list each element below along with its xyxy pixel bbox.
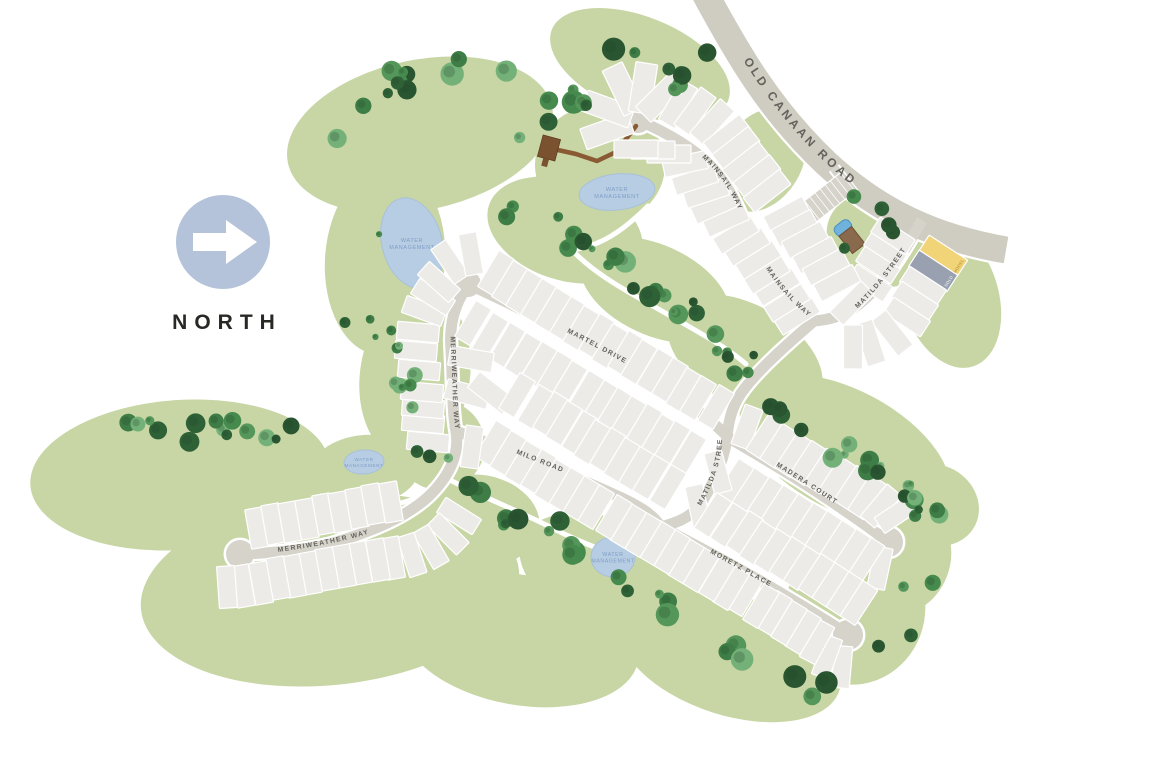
tree-icon bbox=[444, 453, 454, 463]
tree-icon bbox=[391, 76, 404, 89]
tree-icon bbox=[689, 297, 698, 306]
tree-icon bbox=[602, 38, 625, 61]
tree-icon bbox=[606, 248, 624, 266]
tree-icon bbox=[386, 326, 396, 336]
north-label: NORTH bbox=[172, 311, 282, 334]
tree-icon bbox=[749, 351, 758, 360]
tree-icon bbox=[355, 98, 371, 114]
tree-icon bbox=[272, 435, 281, 444]
tree-icon bbox=[621, 585, 634, 598]
tree-icon bbox=[698, 43, 716, 61]
tree-icon bbox=[639, 286, 660, 307]
tree-icon bbox=[550, 511, 569, 530]
community-site-map: WATERMANAGEMENTWATERMANAGEMENTWATERMANAG… bbox=[0, 0, 1153, 770]
tree-icon bbox=[339, 317, 350, 328]
tree-icon bbox=[372, 334, 378, 340]
tree-icon bbox=[712, 346, 722, 356]
tree-icon bbox=[656, 603, 679, 626]
tree-icon bbox=[929, 502, 945, 518]
tree-icon bbox=[823, 448, 843, 468]
tree-icon bbox=[881, 217, 897, 233]
tree-icon bbox=[914, 505, 922, 513]
tree-icon bbox=[673, 66, 691, 84]
tree-icon bbox=[722, 351, 734, 363]
tree-icon bbox=[328, 129, 347, 148]
tree-icon bbox=[180, 432, 200, 452]
tree-icon bbox=[870, 464, 885, 479]
tree-icon bbox=[794, 423, 808, 437]
tree-icon bbox=[726, 365, 742, 381]
tree-icon bbox=[209, 414, 224, 429]
tree-icon bbox=[908, 481, 914, 487]
tree-icon bbox=[783, 665, 806, 688]
north-indicator: NORTH bbox=[172, 195, 282, 334]
tree-icon bbox=[186, 413, 206, 433]
tree-icon bbox=[514, 132, 525, 143]
tree-icon bbox=[508, 509, 529, 530]
tree-icon bbox=[670, 308, 678, 316]
tree-icon bbox=[707, 325, 725, 343]
tree-icon bbox=[627, 282, 640, 295]
tree-icon bbox=[406, 401, 418, 413]
tree-icon bbox=[239, 423, 255, 439]
tree-icon bbox=[224, 412, 242, 430]
tree-icon bbox=[847, 189, 862, 204]
tree-icon bbox=[553, 212, 563, 222]
tree-icon bbox=[451, 51, 467, 67]
tree-icon bbox=[540, 91, 558, 109]
tree-icon bbox=[655, 590, 664, 599]
tree-icon bbox=[907, 490, 922, 505]
tree-icon bbox=[925, 575, 941, 591]
tree-icon bbox=[496, 60, 517, 81]
tree-icon bbox=[498, 208, 515, 225]
tree-icon bbox=[283, 417, 300, 434]
tree-icon bbox=[904, 629, 918, 643]
tree-icon bbox=[898, 581, 909, 592]
tree-icon bbox=[589, 245, 596, 252]
lot-parcel[interactable] bbox=[217, 565, 238, 608]
tree-icon bbox=[731, 648, 754, 671]
tree-icon bbox=[874, 201, 889, 216]
tree-icon bbox=[772, 401, 787, 416]
tree-icon bbox=[145, 416, 154, 425]
tree-icon bbox=[404, 379, 417, 392]
lot-8[interactable] bbox=[844, 325, 863, 369]
lot-84[interactable] bbox=[217, 565, 238, 608]
tree-icon bbox=[131, 417, 146, 432]
tree-icon bbox=[398, 67, 408, 77]
tree-icon bbox=[742, 367, 753, 378]
tree-icon bbox=[562, 544, 582, 564]
tree-icon bbox=[376, 231, 382, 237]
tree-icon bbox=[872, 640, 885, 653]
tree-icon bbox=[395, 342, 403, 350]
tree-icon bbox=[841, 436, 857, 452]
tree-icon bbox=[366, 315, 375, 324]
tree-icon bbox=[839, 243, 850, 254]
tree-icon bbox=[423, 449, 437, 463]
tree-icon bbox=[688, 305, 705, 322]
tree-icon bbox=[411, 445, 424, 458]
site-plan-page: WATERMANAGEMENTWATERMANAGEMENTWATERMANAG… bbox=[0, 0, 1153, 770]
tree-icon bbox=[540, 113, 558, 131]
tree-icon bbox=[544, 526, 554, 536]
tree-icon bbox=[580, 100, 591, 111]
tree-icon bbox=[629, 47, 640, 58]
lot-165[interactable] bbox=[614, 140, 658, 158]
tree-icon bbox=[458, 476, 478, 496]
lot-parcel[interactable] bbox=[844, 325, 863, 369]
tree-icon bbox=[611, 569, 627, 585]
tree-icon bbox=[668, 82, 682, 96]
tree-icon bbox=[815, 671, 838, 694]
tree-icon bbox=[383, 88, 393, 98]
tree-icon bbox=[221, 429, 232, 440]
lot-parcel[interactable] bbox=[614, 140, 658, 158]
